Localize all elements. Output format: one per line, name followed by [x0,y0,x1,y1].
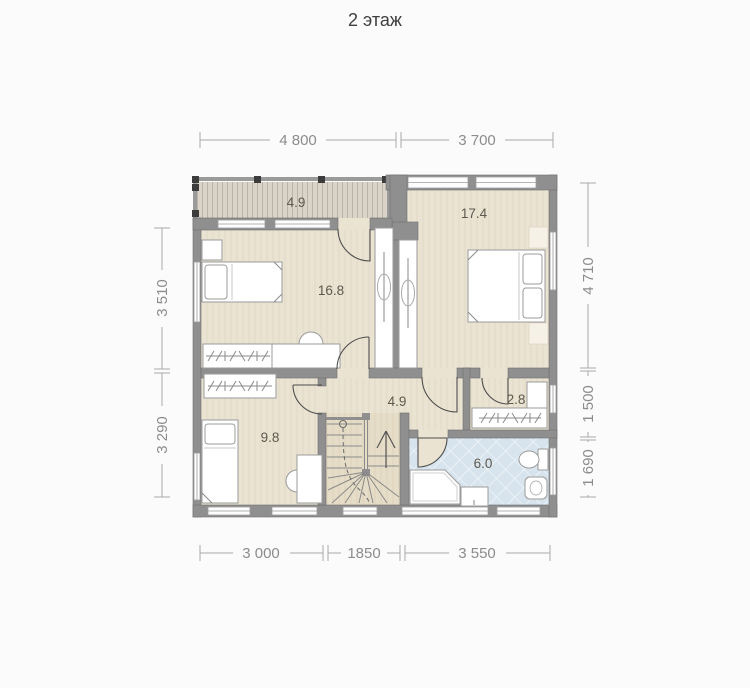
dim-top-left: 4 800 [279,132,317,149]
area-balcony: 4.9 [287,195,306,210]
dim-left-bottom: 3 290 [154,416,171,454]
pillow [523,254,542,284]
area-bedroom-bottom: 9.8 [261,430,280,445]
pillow [205,424,235,444]
floor-plan-canvas: 2 этаж 4 800 3 700 3 000 1850 3 550 3 51… [0,0,750,688]
toilet-bowl [519,451,539,468]
floor-plan-page: 2 этаж 4 800 3 700 3 000 1850 3 550 3 51… [0,0,750,688]
area-bedroom-right: 17.4 [461,206,488,221]
area-bathroom: 6.0 [474,456,493,471]
dim-right-bottom: 1 690 [580,449,597,487]
dim-bottom-right: 3 550 [458,545,496,562]
pillow [205,265,227,299]
area-closet: 2.8 [507,392,526,407]
nightstand [202,240,222,260]
dim-top-right: 3 700 [458,132,496,149]
pillow [523,288,542,318]
dim-left-top: 3 510 [154,279,171,317]
dim-bottom-mid: 1850 [347,545,380,562]
dim-right-top: 4 710 [580,257,597,295]
dim-right-mid: 1 500 [580,385,597,423]
desk [297,455,322,503]
dim-bottom-left: 3 000 [242,545,280,562]
floor-stairs [326,413,400,505]
area-hall: 4.9 [388,394,407,409]
area-bedroom-left: 16.8 [318,283,344,298]
bidet [525,477,547,499]
page-title: 2 этаж [348,10,402,30]
